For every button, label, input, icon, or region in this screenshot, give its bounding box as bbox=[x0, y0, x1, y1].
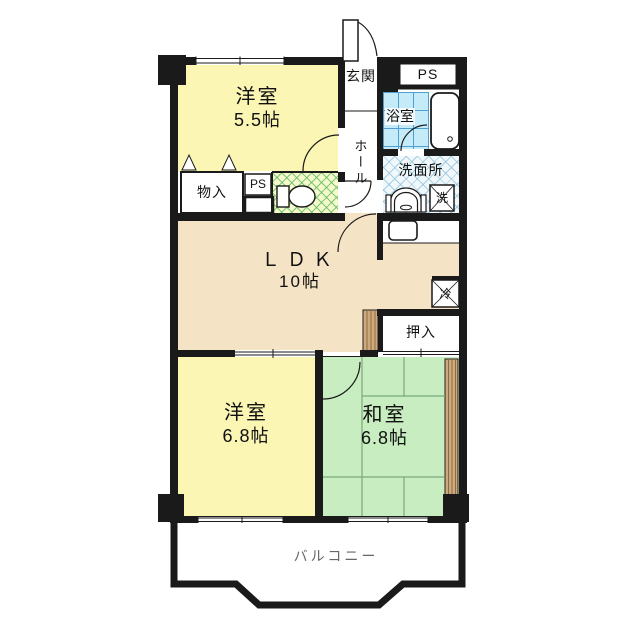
window-bottom-right bbox=[348, 517, 428, 524]
closet-fold-door bbox=[182, 155, 236, 170]
bathtub-icon bbox=[431, 93, 459, 149]
label-ldk-size: 10帖 bbox=[200, 272, 400, 292]
meter-box bbox=[245, 197, 273, 213]
japanese-door-arc bbox=[323, 362, 360, 399]
label-japanese-name: 和室 bbox=[321, 404, 448, 428]
label-western1-size: 5.5帖 bbox=[177, 110, 338, 131]
label-ldk-name: ＬＤＫ bbox=[200, 250, 400, 272]
label-washer: 洗 bbox=[430, 191, 454, 205]
label-storage: 物入 bbox=[181, 184, 243, 201]
label-japanese-size: 6.8帖 bbox=[321, 428, 448, 449]
label-western1-name: 洋室 bbox=[177, 86, 338, 110]
label-western2: 洋室 6.8帖 bbox=[177, 402, 315, 447]
label-washroom: 洗面所 bbox=[383, 162, 459, 179]
label-closet: 押入 bbox=[383, 324, 459, 341]
label-western2-name: 洋室 bbox=[177, 402, 315, 426]
label-ldk: ＬＤＫ 10帖 bbox=[200, 250, 400, 292]
label-japanese: 和室 6.8帖 bbox=[321, 404, 448, 449]
sink-icon bbox=[386, 188, 426, 212]
label-fridge: 冷 bbox=[432, 287, 459, 301]
label-bath: 浴室 bbox=[385, 108, 415, 125]
entrance-door-leaf bbox=[343, 20, 358, 61]
label-balcony: バルコニー bbox=[251, 548, 421, 565]
label-western1: 洋室 5.5帖 bbox=[177, 86, 338, 131]
entrance-door-arc bbox=[358, 22, 377, 56]
label-hall: ホール bbox=[352, 132, 367, 194]
label-entrance: 玄関 bbox=[345, 68, 377, 85]
label-ps-top: PS bbox=[398, 66, 458, 83]
window-bottom-left bbox=[198, 517, 283, 524]
label-western2-size: 6.8帖 bbox=[177, 426, 315, 447]
sliding-door-ldk-western2 bbox=[235, 349, 315, 358]
western1-door-arc bbox=[303, 135, 339, 171]
toilet-icon bbox=[277, 186, 315, 207]
bath-door-arc bbox=[401, 125, 427, 151]
pillar-top-left bbox=[158, 55, 186, 85]
floor-plan: 洋室 5.5帖 玄関 PS 浴室 ホール 洗面所 洗 物入 PS ＬＤＫ 10帖… bbox=[0, 0, 640, 640]
window-top bbox=[196, 57, 284, 66]
label-ps-small: PS bbox=[245, 177, 271, 191]
